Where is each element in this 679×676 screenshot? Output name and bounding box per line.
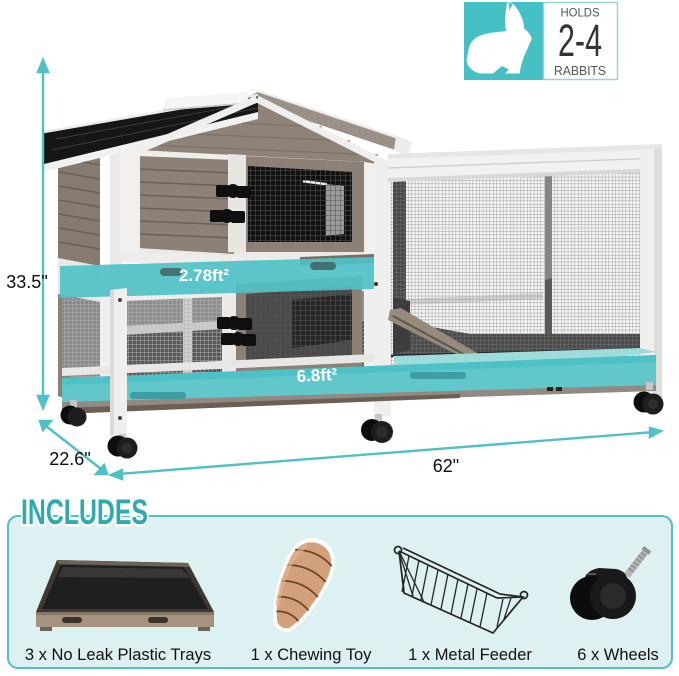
svg-text:2-4: 2-4	[558, 15, 602, 66]
svg-text:1 x Metal Feeder: 1 x Metal Feeder	[408, 646, 532, 664]
svg-text:2.78ft²: 2.78ft²	[179, 266, 229, 285]
svg-text:22.6": 22.6"	[49, 449, 90, 469]
svg-text:3 x No Leak Plastic Trays: 3 x No Leak Plastic Trays	[25, 646, 211, 664]
svg-text:1 x Chewing Toy: 1 x Chewing Toy	[251, 646, 373, 664]
svg-text:6 x Wheels: 6 x Wheels	[577, 646, 659, 664]
svg-text:33.5": 33.5"	[6, 272, 47, 292]
svg-text:RABBITS: RABBITS	[554, 64, 606, 78]
svg-text:62": 62"	[433, 456, 459, 476]
svg-text:INCLUDES: INCLUDES	[21, 493, 148, 532]
svg-text:6.8ft²: 6.8ft²	[296, 365, 338, 386]
